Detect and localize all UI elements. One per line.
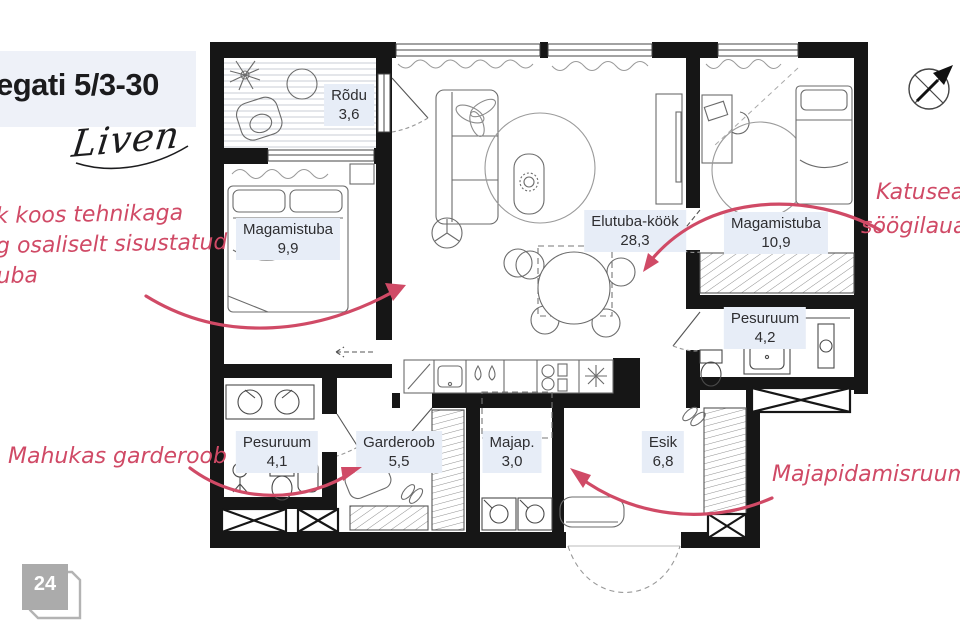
armchair-round — [432, 218, 462, 248]
balcony-chair — [233, 94, 285, 143]
tv-unit — [656, 94, 682, 204]
room-label-majap: Majap.3,0 — [482, 431, 541, 473]
entry-door-swing — [568, 546, 680, 593]
hallway-bench — [560, 497, 624, 527]
shoes — [399, 483, 417, 502]
annotation-left: k koos tehnikaga g osaliselt sisustatud … — [0, 198, 228, 292]
stove — [542, 364, 567, 391]
garderoob-shoe-rack — [350, 506, 428, 530]
living-plant — [453, 96, 498, 138]
annotation-majap: Majapidamisruum — [772, 462, 960, 487]
room-label-magamistuba-1: Magamistuba9,9 — [236, 218, 340, 260]
light-dashed-line — [714, 68, 798, 146]
desk-2 — [702, 95, 749, 163]
room-label-pesuruum-2: Pesuruum4,2 — [724, 307, 806, 349]
room-label-esik: Esik6,8 — [642, 431, 684, 473]
apartment-title: egati 5/3-30 — [0, 67, 159, 103]
balcony-table — [287, 69, 317, 99]
sofa — [436, 90, 498, 224]
dining-set — [516, 251, 635, 337]
shoes — [689, 410, 708, 428]
floorplan-page: { "header": { "title": "egati 5/3-30", "… — [0, 0, 960, 640]
page-number: 24 — [27, 573, 63, 596]
armchair-2 — [504, 249, 532, 277]
brand-signature: Liven — [70, 113, 183, 166]
curtain-lines — [232, 60, 781, 179]
room-label-pesuruum-1: Pesuruum4,1 — [236, 431, 318, 473]
room-label-rodu: Rõdu3,6 — [324, 84, 374, 126]
kitchen-sink — [438, 366, 462, 387]
washer-dryer — [482, 498, 552, 530]
balcony-plant — [230, 61, 260, 90]
annotation-right-line2: söögilaua k — [861, 214, 960, 239]
kitchen-counter — [404, 360, 613, 393]
hallway-closet — [704, 408, 746, 514]
annotation-right-line1: Katuseake — [876, 180, 960, 205]
annotation-left-line1: k koos tehnikaga — [0, 198, 227, 232]
room-label-garderoob: Garderoob5,5 — [356, 431, 442, 473]
compass-north-icon — [909, 65, 953, 109]
annotation-garderoob: Mahukas garderoob — [8, 444, 227, 469]
shoes — [407, 487, 425, 506]
wardrobe-hatch-bedroom2 — [700, 253, 854, 293]
side-table — [514, 154, 544, 214]
shoes — [681, 405, 700, 423]
annotation-left-line2: g osaliselt sisustatud — [0, 228, 228, 262]
arrow-majap — [578, 476, 772, 514]
skylight-dashed — [538, 246, 612, 316]
annotation-left-line3: uba — [0, 258, 228, 292]
room-label-elutuba-kook: Elutuba-köök28,3 — [584, 210, 686, 252]
room-label-magamistuba-2: Magamistuba10,9 — [724, 212, 828, 254]
living-rug — [485, 113, 595, 223]
arrow-bedroom1 — [146, 289, 398, 328]
bed-2 — [796, 86, 852, 204]
bedroom2-rug — [712, 122, 808, 218]
fridge-mark — [585, 365, 607, 387]
doors — [336, 78, 700, 593]
nightstand — [350, 164, 374, 184]
